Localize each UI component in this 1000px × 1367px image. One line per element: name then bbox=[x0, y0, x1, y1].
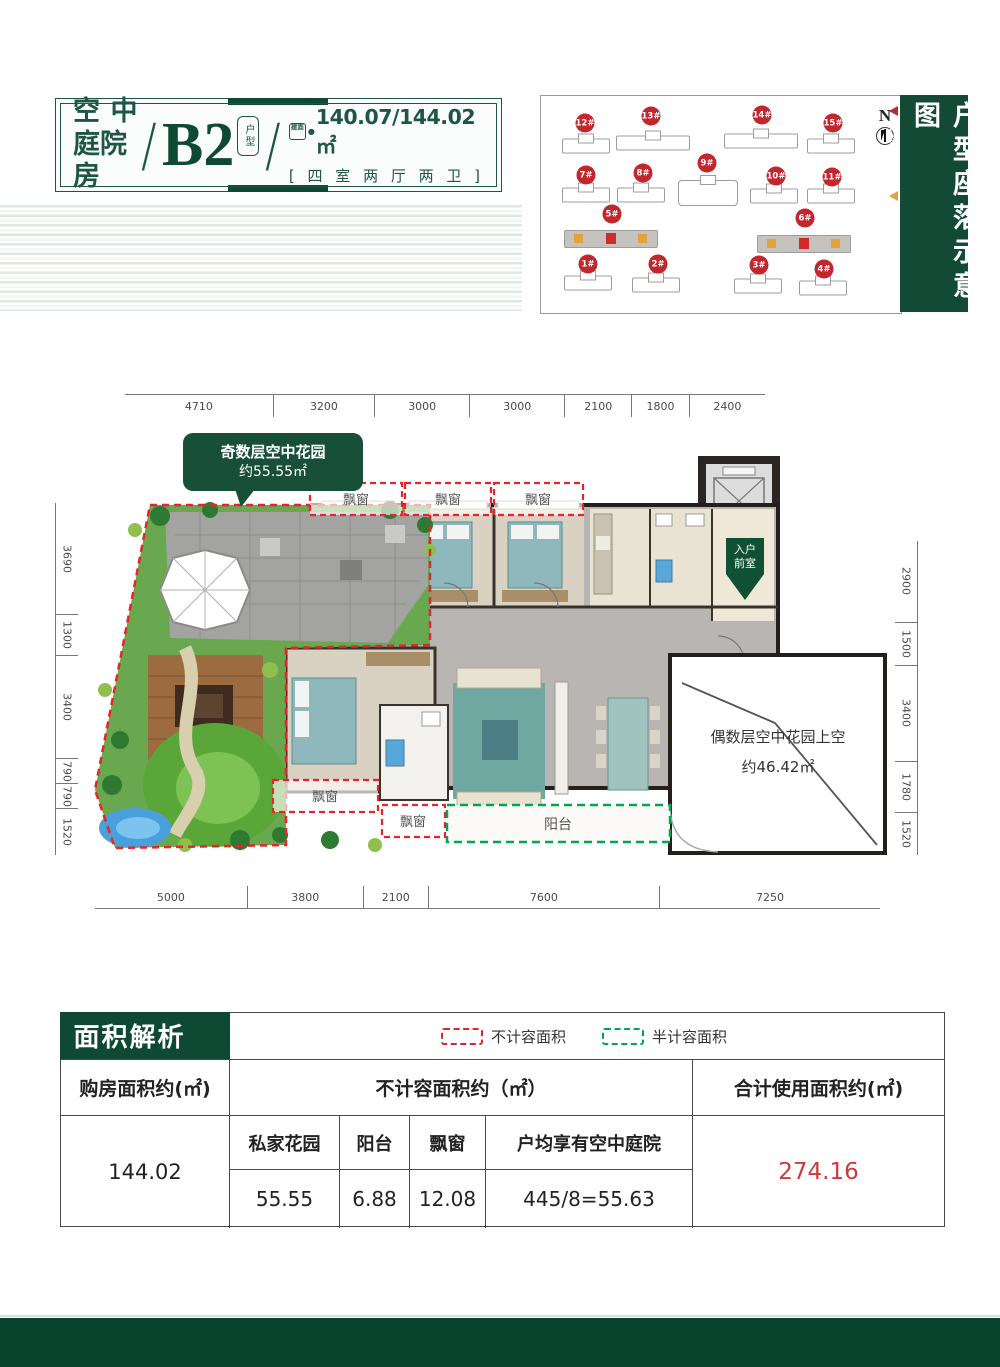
legend-half-counted-label: 半计容面积 bbox=[652, 1026, 727, 1047]
legend-half-counted: 半计容面积 bbox=[602, 1026, 727, 1047]
sub-header-balcony: 阳台 bbox=[339, 1115, 409, 1169]
dimension-segment: 3000 bbox=[469, 395, 564, 417]
unit-title-box: 空 中 庭院房 / B2 户型 / 建面 ● 140.07/144.02㎡ [ … bbox=[55, 98, 502, 192]
building-number-badge: 4# bbox=[815, 260, 834, 279]
dimension-segment: 790 bbox=[56, 758, 78, 783]
building-number-badge: 10# bbox=[767, 167, 786, 186]
building-number-badge: 8# bbox=[634, 164, 653, 183]
balcony-label: 阳台 bbox=[544, 817, 572, 833]
purchase-area-value: 144.02 bbox=[61, 1115, 229, 1228]
even-floor-garden-label: 偶数层花园 bbox=[885, 206, 901, 271]
decorative-stripes bbox=[0, 205, 522, 311]
building-shape bbox=[564, 230, 658, 248]
building-number-badge: 9# bbox=[698, 154, 717, 173]
building-number-badge: 7# bbox=[577, 166, 596, 185]
building-number-badge: 12# bbox=[576, 114, 595, 133]
dimension-segment: 1520 bbox=[56, 808, 78, 855]
building-shape bbox=[734, 279, 782, 294]
odd-floor-garden-label: 奇数层花园 bbox=[885, 121, 901, 186]
floor-plan: 入户 前室 bbox=[90, 440, 890, 880]
green-dashed-box-icon bbox=[602, 1028, 644, 1045]
dimension-segment: 7600 bbox=[428, 886, 660, 908]
building-number-badge: 2# bbox=[649, 255, 668, 274]
site-plan: 12#13#14#15#7#8#9#10#11#5#6#1#2#3#4# N bbox=[540, 95, 902, 314]
building-number-badge: 13# bbox=[642, 107, 661, 126]
col-not-counted-header: 不计容面积约（㎡） bbox=[229, 1059, 692, 1115]
dimensions-right: 29001500340017801520 bbox=[895, 541, 918, 855]
slash-divider: / bbox=[141, 119, 157, 171]
callout-line1: 奇数层空中花园 bbox=[183, 443, 363, 463]
dimensions-left: 3690130034007907901520 bbox=[55, 503, 78, 855]
odd-floor-garden-callout: 奇数层空中花园 约55.55㎡ bbox=[183, 433, 363, 491]
room-layout-text: [ 四 室 两 厅 两 卫 ] bbox=[289, 165, 484, 186]
dimension-segment: 3200 bbox=[273, 395, 374, 417]
product-title: 空 中 庭院房 bbox=[73, 96, 137, 193]
table-legend: 不计容面积 半计容面积 bbox=[441, 1013, 727, 1059]
legend-not-counted: 不计容面积 bbox=[441, 1026, 566, 1047]
building-number-badge: 14# bbox=[753, 106, 772, 125]
sub-header-courtyard: 户均享有空中庭院 bbox=[485, 1115, 692, 1169]
bay-window-label: 飘窗 bbox=[343, 492, 369, 508]
table-grid: 购房面积约(㎡) 不计容面积约（㎡） 合计使用面积约(㎡) 144.02 私家花… bbox=[61, 1059, 944, 1228]
dimension-segment: 790 bbox=[56, 783, 78, 808]
unit-code: B2 bbox=[162, 114, 234, 176]
built-area-stamp-icon: 建面 bbox=[289, 123, 306, 140]
building-number-badge: 5# bbox=[603, 205, 622, 224]
total-area-value: 274.16 bbox=[692, 1115, 944, 1228]
dimension-segment: 1780 bbox=[895, 761, 917, 812]
building-shape bbox=[564, 276, 612, 291]
odd-floor-garden-marker-icon bbox=[889, 106, 898, 116]
void-label-2: 约46.42㎡ bbox=[742, 758, 815, 776]
dimension-segment: 3800 bbox=[247, 886, 363, 908]
master-bathroom bbox=[380, 705, 448, 800]
built-area-line: 建面 ● 140.07/144.02㎡ bbox=[289, 105, 484, 159]
dot-icon: ● bbox=[308, 127, 315, 136]
building-shape bbox=[807, 189, 855, 204]
void-label-1: 偶数层空中花园上空 bbox=[710, 728, 845, 746]
dimension-segment: 3690 bbox=[56, 503, 78, 614]
sub-header-bay-window: 飘窗 bbox=[409, 1115, 485, 1169]
siteplan-buildings: 12#13#14#15#7#8#9#10#11#5#6#1#2#3#4# bbox=[541, 96, 901, 313]
title-char-2: 中 bbox=[110, 96, 137, 128]
dimension-segment: 1300 bbox=[56, 614, 78, 654]
building-shape bbox=[807, 139, 855, 154]
building-shape bbox=[616, 136, 690, 151]
bay-window-label: 飘窗 bbox=[435, 492, 461, 508]
garden-area-value: 55.55 bbox=[229, 1169, 339, 1228]
col-purchase-area-header: 购房面积约(㎡) bbox=[61, 1059, 229, 1115]
building-shape bbox=[724, 134, 798, 149]
siteplan-title: 户型座落示意图 bbox=[905, 101, 983, 307]
dimension-segment: 1800 bbox=[631, 395, 688, 417]
garden-legend: 奇数层花园 偶数层花园 bbox=[885, 106, 901, 302]
entry-label-1: 入户 bbox=[734, 542, 756, 556]
courtyard-area-value: 445/8=55.63 bbox=[485, 1169, 692, 1228]
dimension-segment: 1500 bbox=[895, 622, 917, 665]
building-number-badge: 1# bbox=[579, 255, 598, 274]
siteplan-sidebar: 奇数层花园 偶数层花园 户型座落示意图 bbox=[900, 95, 968, 312]
building-number-badge: 15# bbox=[824, 114, 843, 133]
building-number-badge: 3# bbox=[750, 256, 769, 275]
building-shape bbox=[750, 189, 798, 204]
header-right: 建面 ● 140.07/144.02㎡ [ 四 室 两 厅 两 卫 ] bbox=[289, 105, 484, 186]
building-shape bbox=[632, 278, 680, 293]
building-shape bbox=[799, 281, 847, 296]
red-dashed-box-icon bbox=[441, 1028, 483, 1045]
dimension-segment: 3400 bbox=[56, 655, 78, 759]
footer-bar bbox=[0, 1318, 1000, 1367]
sub-header-garden: 私家花园 bbox=[229, 1115, 339, 1169]
entry-label-2: 前室 bbox=[734, 556, 756, 570]
building-shape bbox=[562, 139, 610, 154]
dimension-segment: 3000 bbox=[374, 395, 469, 417]
building-number-badge: 11# bbox=[823, 168, 842, 187]
bay-window-label: 飘窗 bbox=[312, 789, 338, 805]
footer-divider bbox=[0, 1315, 1000, 1317]
bedroom3-bed bbox=[502, 522, 568, 602]
dimension-segment: 4710 bbox=[125, 395, 273, 417]
balcony: 阳台 bbox=[447, 805, 670, 842]
col-total-header: 合计使用面积约(㎡) bbox=[692, 1059, 944, 1115]
legend-not-counted-label: 不计容面积 bbox=[491, 1026, 566, 1047]
balcony-area-value: 6.88 bbox=[339, 1169, 409, 1228]
dimension-segment: 2400 bbox=[689, 395, 765, 417]
area-analysis-table: 面积解析 不计容面积 半计容面积 购房面积约(㎡) 不计容面积约（㎡） 合计使用… bbox=[60, 1012, 945, 1227]
building-shape bbox=[757, 235, 851, 253]
building-shape bbox=[678, 180, 738, 206]
dimension-segment: 2100 bbox=[564, 395, 631, 417]
slash-divider: / bbox=[265, 119, 281, 171]
dimension-segment: 7250 bbox=[659, 886, 880, 908]
even-floor-garden-marker-icon bbox=[889, 191, 898, 201]
dimension-segment: 2900 bbox=[895, 541, 917, 622]
dimension-segment: 5000 bbox=[95, 886, 247, 908]
callout-line2: 约55.55㎡ bbox=[183, 463, 363, 481]
void-room: 偶数层空中花园上空 约46.42㎡ bbox=[670, 655, 885, 853]
bay-window-area-value: 12.08 bbox=[409, 1169, 485, 1228]
bay-window-label: 飘窗 bbox=[400, 814, 426, 830]
table-title: 面积解析 bbox=[60, 1012, 230, 1059]
dimension-segment: 2100 bbox=[363, 886, 428, 908]
title-line-2: 庭院房 bbox=[73, 129, 137, 194]
dimension-segment: 3400 bbox=[895, 665, 917, 761]
dimensions-bottom: 50003800210076007250 bbox=[95, 886, 880, 909]
unit-type-seal: 户型 bbox=[237, 116, 259, 156]
bay-window-label: 飘窗 bbox=[525, 492, 551, 508]
dimensions-top: 4710320030003000210018002400 bbox=[125, 394, 765, 417]
building-shape bbox=[562, 188, 610, 203]
title-char-1: 空 bbox=[73, 96, 100, 128]
built-area-value: 140.07/144.02㎡ bbox=[316, 105, 484, 159]
dimension-segment: 1520 bbox=[895, 812, 917, 855]
building-shape bbox=[617, 188, 665, 203]
title-box-inner: 空 中 庭院房 / B2 户型 / 建面 ● 140.07/144.02㎡ [ … bbox=[60, 103, 497, 187]
building-number-badge: 6# bbox=[796, 209, 815, 228]
